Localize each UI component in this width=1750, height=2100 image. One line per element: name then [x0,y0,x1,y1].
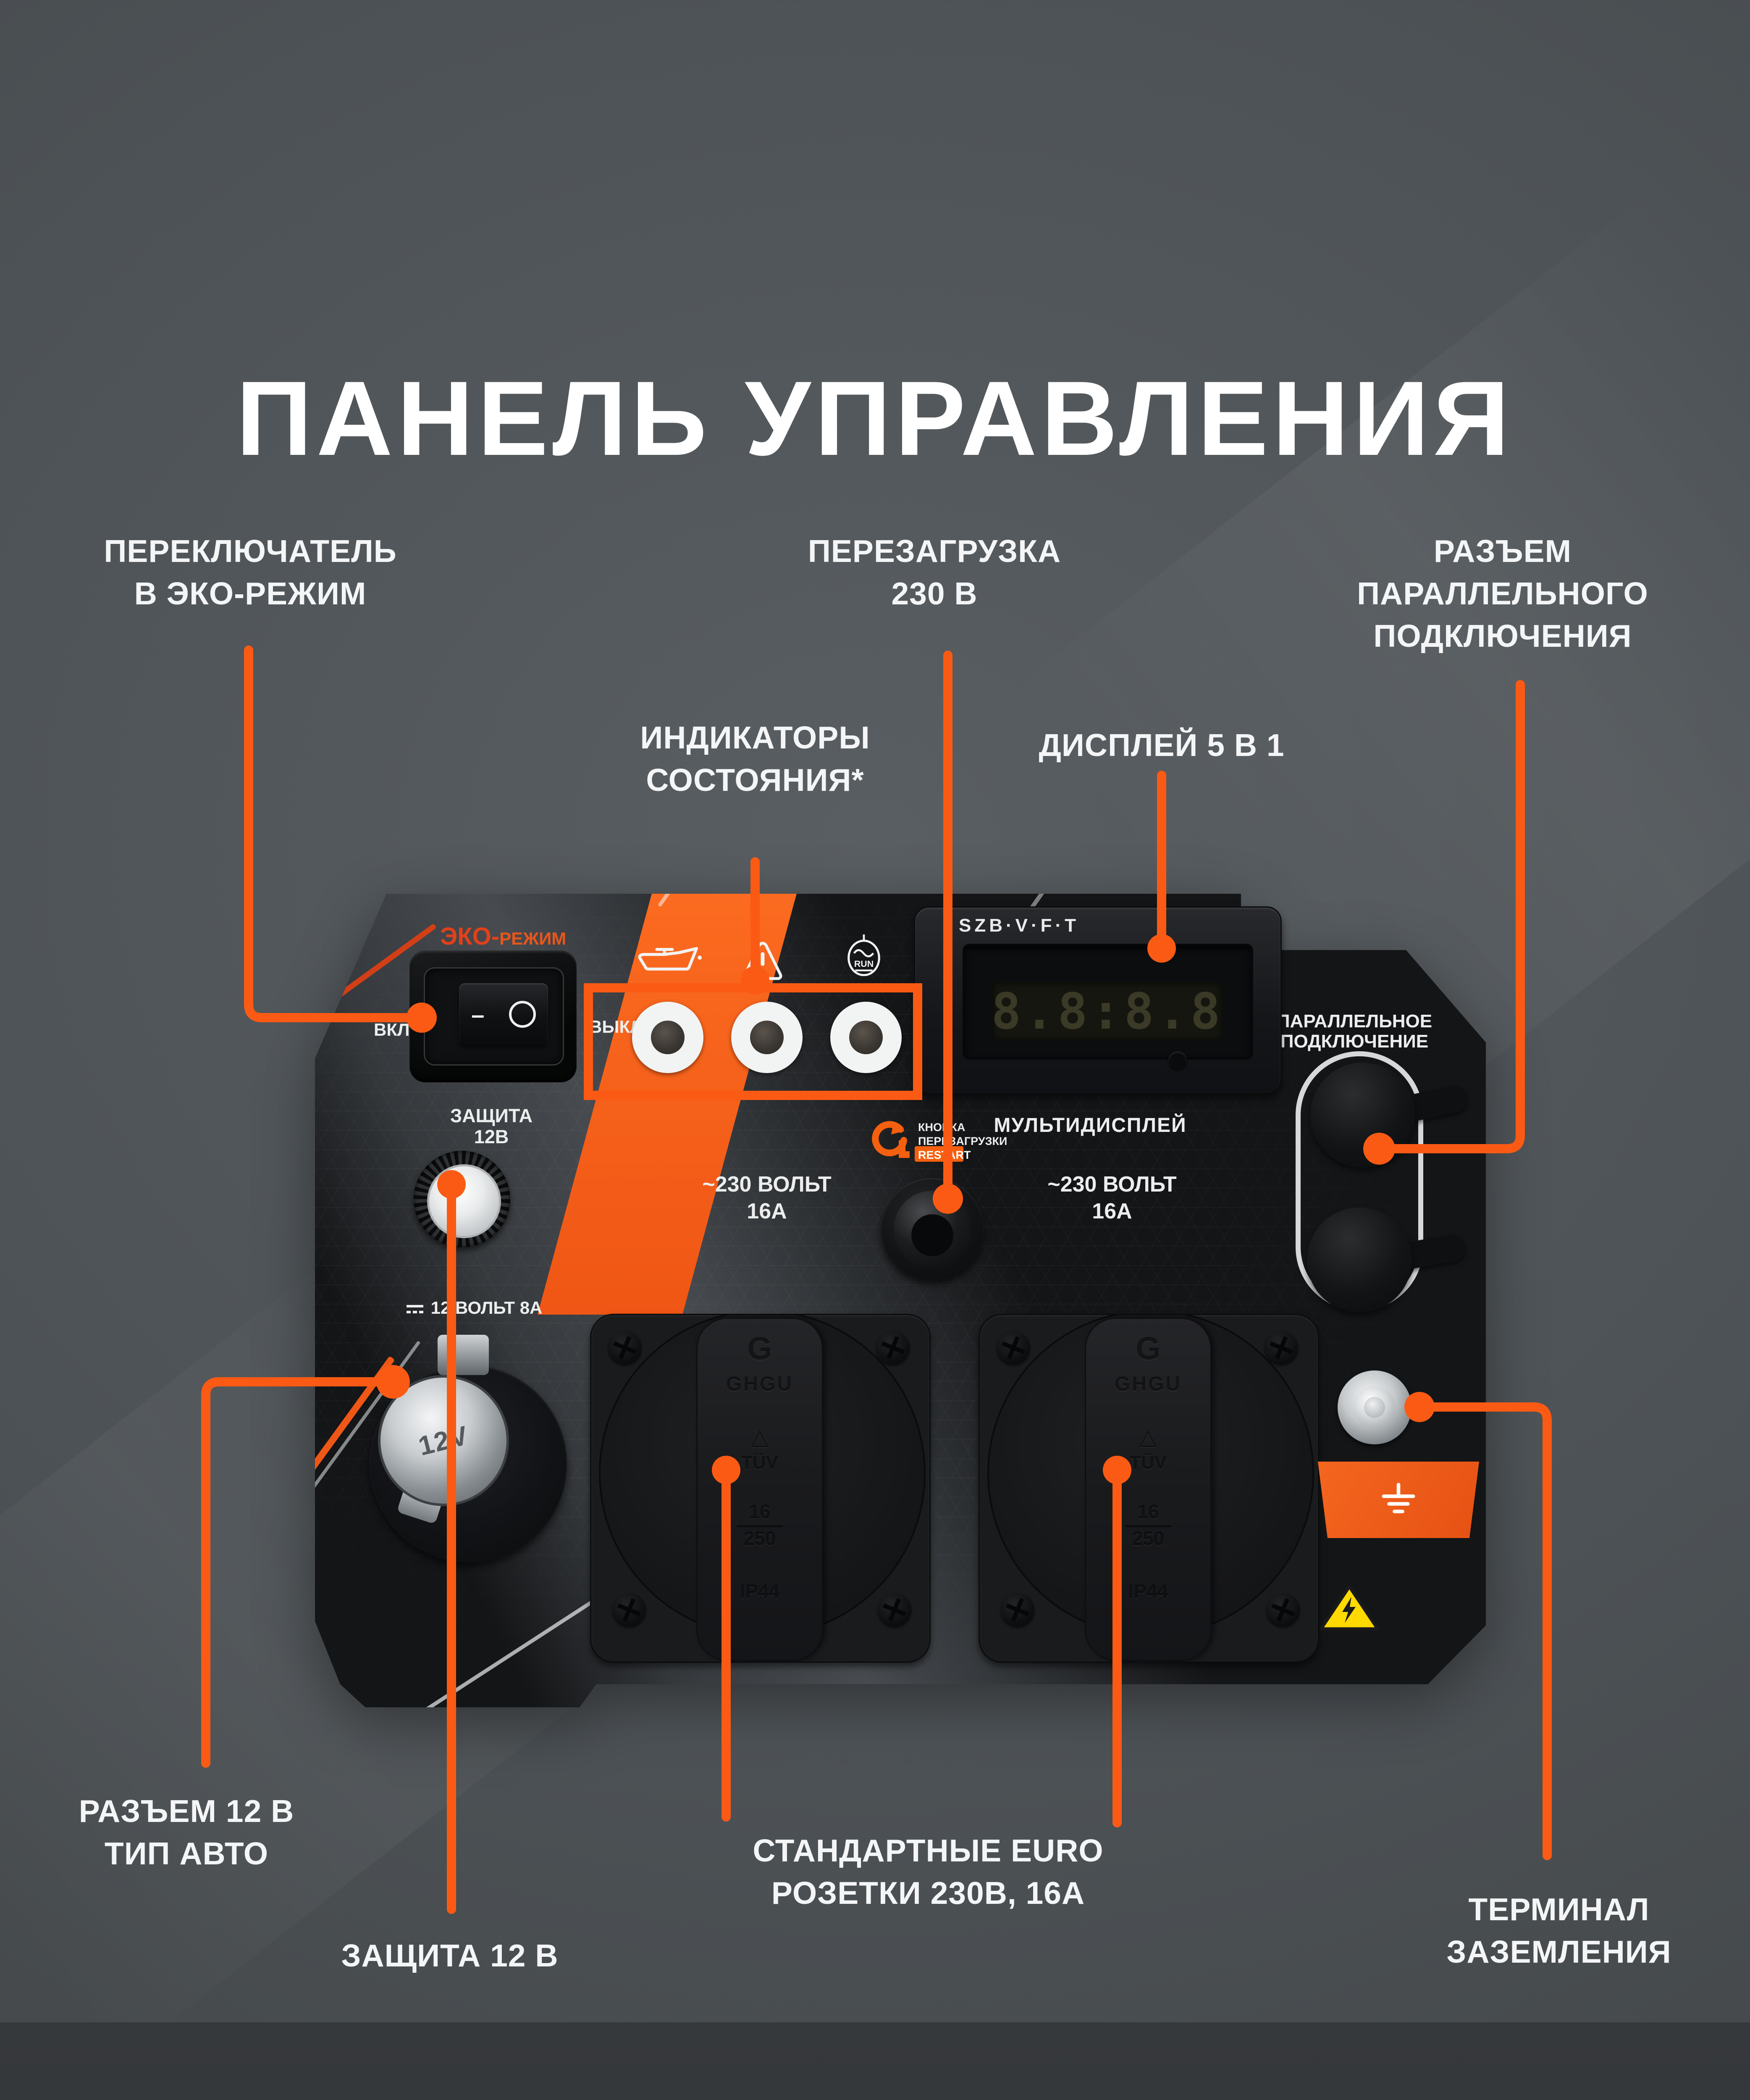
lid-cert-mark: △ [1086,1425,1210,1450]
multidisplay-module: SZB·V·F·T 8.8:8.8 [914,906,1282,1095]
lid-cert-mark: △ [698,1425,822,1450]
dc-icon [404,1301,426,1315]
display-digits: 8.8:8.8 [991,982,1223,1040]
protection-button-cap [427,1164,501,1238]
lid-brand: GHGU [1086,1373,1210,1396]
screw-icon [612,1593,646,1627]
ground-symbol-icon [1378,1481,1419,1518]
screw-icon [1001,1593,1034,1627]
euro-socket-right[interactable]: G GHGU △ TÜV 16 250 IP44 [979,1314,1319,1663]
lid-brand: GHGU [698,1373,822,1396]
lid-cert: TÜV [1086,1452,1210,1473]
callout-label-socket-12v: РАЗЪЕМ 12 ВТИП АВТО [79,1790,294,1875]
parallel-terminal-2[interactable] [1307,1207,1412,1312]
status-lamp-overload [731,1002,803,1073]
lid-logo: G [698,1331,822,1367]
display-screen: 8.8:8.8 [992,982,1223,1041]
multidisplay-print: МУЛЬТИДИСПЛЕЙ [994,1114,1186,1137]
callout-label-restart-230: ПЕРЕЗАГРУЗКА230 В [808,530,1061,615]
legend-footer: Индикаторысостояния: * Индикатормасла Ин… [0,2022,1750,2100]
screw-icon [876,1331,910,1365]
callout-label-euro-sockets: СТАНДАРТНЫЕ EUROРОЗЕТКИ 230В, 16А [753,1830,1103,1914]
restart-button[interactable] [881,1178,984,1281]
restart-print: КНОПКА ПЕРЕЗАГРУЗКИ RESTART [918,1121,1007,1162]
lid-amp: 16 [698,1500,822,1523]
high-voltage-sticker [1319,1584,1380,1631]
oil-icon [631,937,704,977]
eco-rocker-switch[interactable]: – O [409,950,577,1082]
lid-volt: 250 [1125,1525,1171,1550]
callout-label-eco-switch: ПЕРЕКЛЮЧАТЕЛЬВ ЭКО-РЕЖИМ [104,530,396,615]
rocker[interactable]: – O [459,983,548,1045]
callout-label-status-indicators: ИНДИКАТОРЫСОСТОЯНИЯ* [640,717,870,801]
switch-on-mark: – [471,1001,484,1028]
ground-terminal-bolt [1364,1397,1385,1418]
page-title: ПАНЕЛЬ УПРАВЛЕНИЯ [236,358,1514,479]
display-header: SZB·V·F·T [959,915,1079,936]
callout-label-parallel-port: РАЗЪЕМПАРАЛЛЕЛЬНОГОПОДКЛЮЧЕНИЯ [1357,530,1648,657]
euro-socket-left[interactable]: G GHGU △ TÜV 16 250 IP44 [590,1314,931,1663]
display-mode-button[interactable] [1168,1051,1187,1070]
ground-terminal[interactable] [1338,1370,1412,1444]
status-lamp-voltage [830,1002,902,1073]
socket-12v-cap[interactable]: 12V [378,1375,509,1506]
socket-left-print: ~230 ВОЛЬТ16А [702,1171,831,1225]
switch-off-mark: O [509,1001,536,1028]
screw-icon [608,1331,642,1365]
lid-logo: G [1086,1331,1210,1367]
lid-amp: 16 [1086,1500,1210,1523]
screw-icon [1266,1593,1300,1627]
socket-right-print: ~230 ВОЛЬТ16А [1047,1171,1176,1225]
euro-socket-lid[interactable]: G GHGU △ TÜV 16 250 IP44 [696,1318,823,1661]
svg-text:RUN: RUN [854,959,874,969]
run-icon: RUN [841,934,887,976]
callout-label-protection-12v: ЗАЩИТА 12 В [341,1935,559,1977]
lid-ip: IP44 [1086,1580,1210,1603]
ground-sticker [1318,1462,1479,1538]
warning-icon [737,940,788,981]
socket-12v-hinge [438,1335,489,1375]
protection-12v-button[interactable] [414,1151,510,1247]
dc-12v-print: 12 ВОЛЬТ 8А [404,1298,542,1318]
protection-print: ЗАЩИТА12В [450,1105,533,1147]
screw-icon [878,1593,911,1627]
screw-icon [997,1331,1030,1365]
parallel-print: ПАРАЛЛЕЛЬНОЕПОДКЛЮЧЕНИЕ [1277,1011,1432,1052]
callout-label-ground-terminal: ТЕРМИНАЛЗАЗЕМЛЕНИЯ [1446,1888,1671,1973]
display-window: 8.8:8.8 [963,944,1253,1060]
lid-volt: 250 [737,1525,783,1550]
eco-mode-print: ЭКО-РЕЖИМ [440,922,566,950]
lid-cert: TÜV [698,1452,822,1473]
status-lamp-oil [632,1002,703,1073]
restart-icon [869,1118,910,1161]
restart-button-core [911,1214,953,1256]
parallel-terminal-1[interactable] [1310,1063,1415,1168]
lid-ip: IP44 [698,1580,822,1603]
switch-on-print: ВКЛ [374,1020,409,1040]
euro-socket-lid[interactable]: G GHGU △ TÜV 16 250 IP44 [1085,1318,1212,1661]
screw-icon [1265,1331,1298,1365]
callout-label-display-5in1: ДИСПЛЕЙ 5 В 1 [1039,724,1284,766]
